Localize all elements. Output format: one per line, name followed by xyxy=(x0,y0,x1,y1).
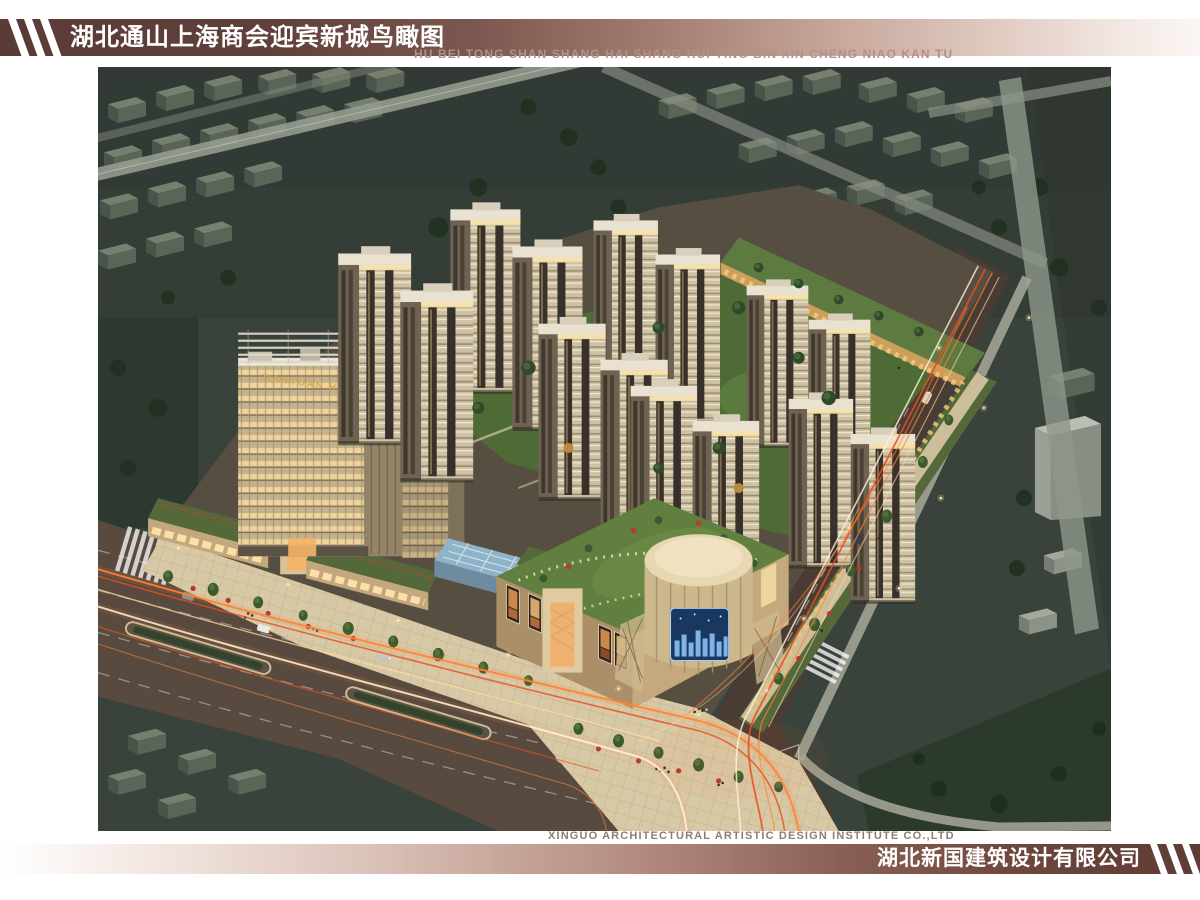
page: { "header": { "title_cn": "湖北通山上海商会迎宾新城鸟… xyxy=(0,0,1200,900)
design-institute-credit: XINGUO ARCHITECTURAL ARTISTIC DESIGN INS… xyxy=(548,830,955,842)
company-name: 湖北新国建筑设计有限公司 xyxy=(877,844,1141,874)
aerial-rendering-canvas: JIANYUAN HOTEL xyxy=(98,67,1111,831)
aerial-rendering: JIANYUAN HOTEL xyxy=(98,67,1111,831)
page-title: 湖北通山上海商会迎宾新城鸟瞰图 xyxy=(70,19,445,56)
diagonal-stripe-icon xyxy=(1150,844,1168,874)
page-subtitle-pinyin: HU BEI TONG SHAN SHANG HAI SHANG HUI YIN… xyxy=(414,47,953,61)
commercial-entrance xyxy=(542,588,582,672)
diagonal-stripe-icon xyxy=(1182,844,1200,874)
diagonal-stripe-icon xyxy=(1166,844,1184,874)
drum-tower xyxy=(645,534,753,674)
